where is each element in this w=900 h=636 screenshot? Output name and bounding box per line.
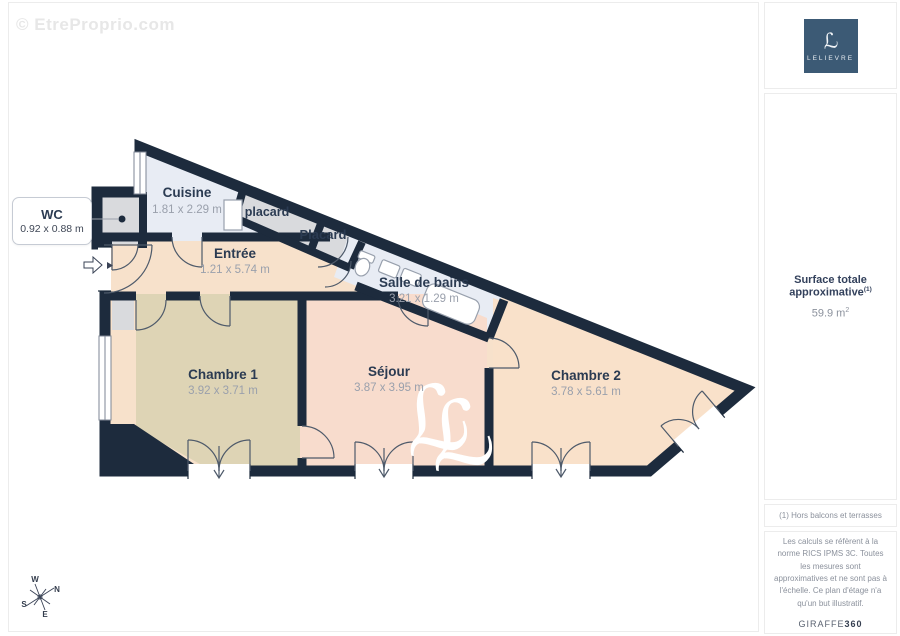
compass-icon — [26, 584, 54, 610]
cuisine-window — [134, 152, 146, 194]
giraffe360-brand: GIRAFFE360 — [798, 619, 862, 629]
sidebar-legal-box: Les calculs se réfèrent à la norme RICS … — [764, 531, 897, 634]
room-label-salle-de-bains: Salle de bains — [379, 275, 469, 290]
wc-leader-dot — [119, 216, 126, 223]
wc-callout: WC 0.92 x 0.88 m — [12, 197, 92, 245]
chambre1-niche-floor — [112, 298, 134, 330]
room-dims-chambre1: 3.92 x 3.71 m — [188, 385, 258, 397]
room-dims-entree: 1.21 x 5.74 m — [200, 264, 270, 276]
lelievre-brand-name: LELIEVRE — [807, 55, 854, 62]
chambre1-window — [99, 336, 111, 420]
lelievre-monogram-icon: ℒ — [821, 29, 839, 53]
wc-callout-dims: 0.92 x 0.88 m — [20, 222, 84, 236]
room-label-chambre1: Chambre 1 — [188, 367, 258, 382]
room-label-placard-small: placard — [245, 205, 289, 219]
cuisine-cupboard — [224, 200, 242, 230]
surface-total-label: Surface totale approximative(1) — [765, 274, 896, 299]
surface-label-text: Surface totale approximative — [789, 274, 867, 299]
legal-text: Les calculs se réfèrent à la norme RICS … — [773, 536, 888, 610]
room-label-placard: Placard — [300, 227, 347, 242]
sidebar-footnote-box: (1) Hors balcons et terrasses — [764, 504, 897, 527]
lelievre-logo: ℒ LELIEVRE — [804, 19, 858, 73]
room-dims-chambre2: 3.78 x 5.61 m — [551, 386, 621, 398]
surface-value-text: 59.9 m — [812, 307, 846, 319]
surface-label-sup: (1) — [864, 286, 872, 293]
giraffe-number: 360 — [844, 619, 862, 629]
compass-s: S — [21, 600, 27, 609]
wc-callout-name: WC — [41, 207, 63, 222]
sidebar-surface-box: Surface totale approximative(1) 59.9 m2 — [764, 93, 897, 500]
room-dims-cuisine: 1.81 x 2.29 m — [152, 204, 222, 216]
room-dims-sejour: 3.87 x 3.95 m — [354, 382, 424, 394]
surface-total-value: 59.9 m2 — [812, 307, 850, 320]
chambre2-floor — [493, 298, 741, 468]
compass-e: E — [42, 610, 48, 619]
giraffe-text: GIRAFFE — [798, 619, 844, 629]
room-label-chambre2: Chambre 2 — [551, 368, 621, 383]
compass-w: W — [31, 575, 39, 584]
footnote-text: (1) Hors balcons et terrasses — [779, 511, 882, 520]
room-label-entree: Entrée — [214, 246, 257, 261]
floorplan-page: { "watermark": "© EtreProprio.com", "bra… — [0, 0, 900, 636]
sidebar-logo-box: ℒ LELIEVRE — [764, 2, 897, 89]
room-label-sejour: Séjour — [368, 364, 411, 379]
entrance-opening — [98, 247, 111, 291]
room-dims-salle-de-bains: 3.21 x 1.29 m — [389, 293, 459, 305]
room-label-cuisine: Cuisine — [163, 185, 212, 200]
compass-n: N — [54, 585, 60, 594]
surface-value-sup: 2 — [845, 307, 849, 314]
